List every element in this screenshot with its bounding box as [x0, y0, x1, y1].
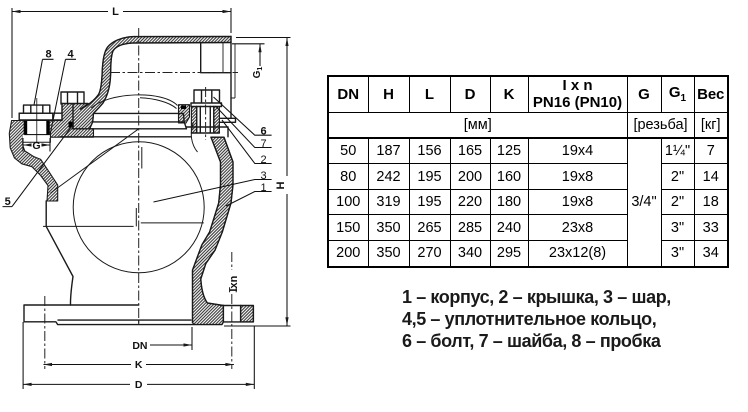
svg-text:3: 3	[260, 170, 266, 182]
svg-text:G: G	[32, 140, 40, 152]
svg-text:8: 8	[45, 48, 51, 60]
svg-text:G1: G1	[252, 67, 264, 79]
svg-text:5: 5	[5, 196, 11, 208]
svg-text:1: 1	[260, 182, 266, 194]
svg-text:D: D	[135, 379, 143, 391]
svg-text:K: K	[135, 359, 143, 371]
svg-text:4: 4	[67, 48, 74, 60]
svg-text:DN: DN	[132, 340, 147, 352]
svg-text:L: L	[112, 6, 119, 18]
svg-text:H: H	[275, 181, 287, 189]
svg-text:6: 6	[260, 126, 266, 138]
svg-text:7: 7	[260, 138, 266, 150]
svg-text:2: 2	[260, 154, 266, 166]
